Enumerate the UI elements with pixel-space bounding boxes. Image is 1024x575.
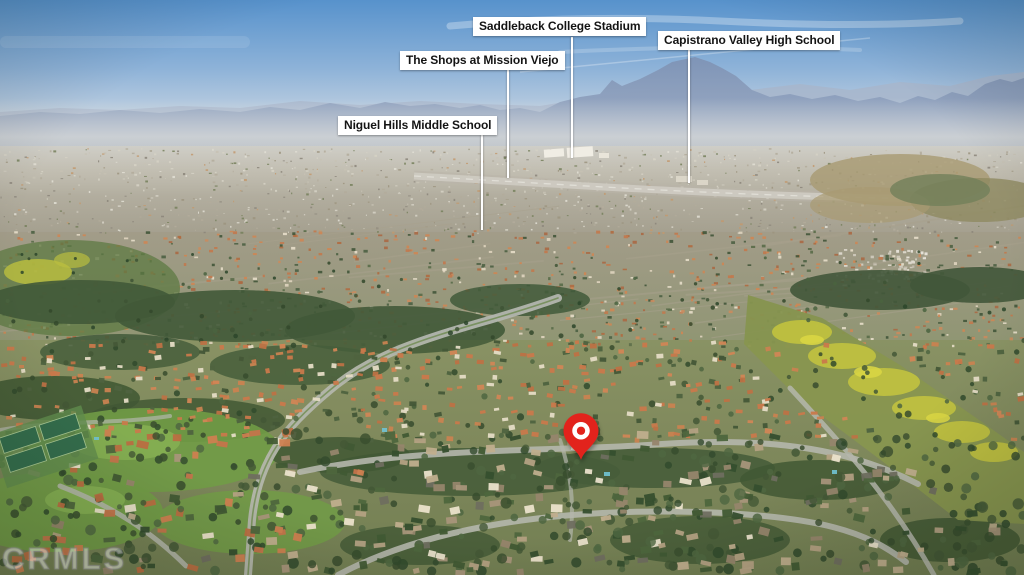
callout-label: The Shops at Mission Viejo [406, 53, 559, 67]
aerial-photo-scene [0, 0, 1024, 575]
annotated-aerial-photo: Saddleback College Stadium The Shops at … [0, 0, 1024, 575]
leader-line-saddleback-college-stadium [571, 37, 573, 158]
location-pin-icon [560, 412, 602, 462]
pin-dot [577, 427, 585, 435]
callout-niguel-hills-middle-school: Niguel Hills Middle School [338, 116, 497, 135]
callout-capistrano-valley-high-school: Capistrano Valley High School [658, 31, 840, 50]
leader-line-the-shops-at-mission-viejo [507, 70, 509, 178]
callout-label: Niguel Hills Middle School [344, 118, 491, 132]
mls-watermark: CRMLS [2, 541, 127, 575]
leader-line-capistrano-valley-high-school [688, 50, 690, 183]
callout-the-shops-at-mission-viejo: The Shops at Mission Viejo [400, 51, 565, 70]
callout-saddleback-college-stadium: Saddleback College Stadium [473, 17, 646, 36]
vignette [0, 0, 1024, 575]
callout-label: Capistrano Valley High School [664, 33, 834, 47]
leader-line-niguel-hills-middle-school [481, 135, 483, 230]
callout-label: Saddleback College Stadium [479, 19, 640, 33]
